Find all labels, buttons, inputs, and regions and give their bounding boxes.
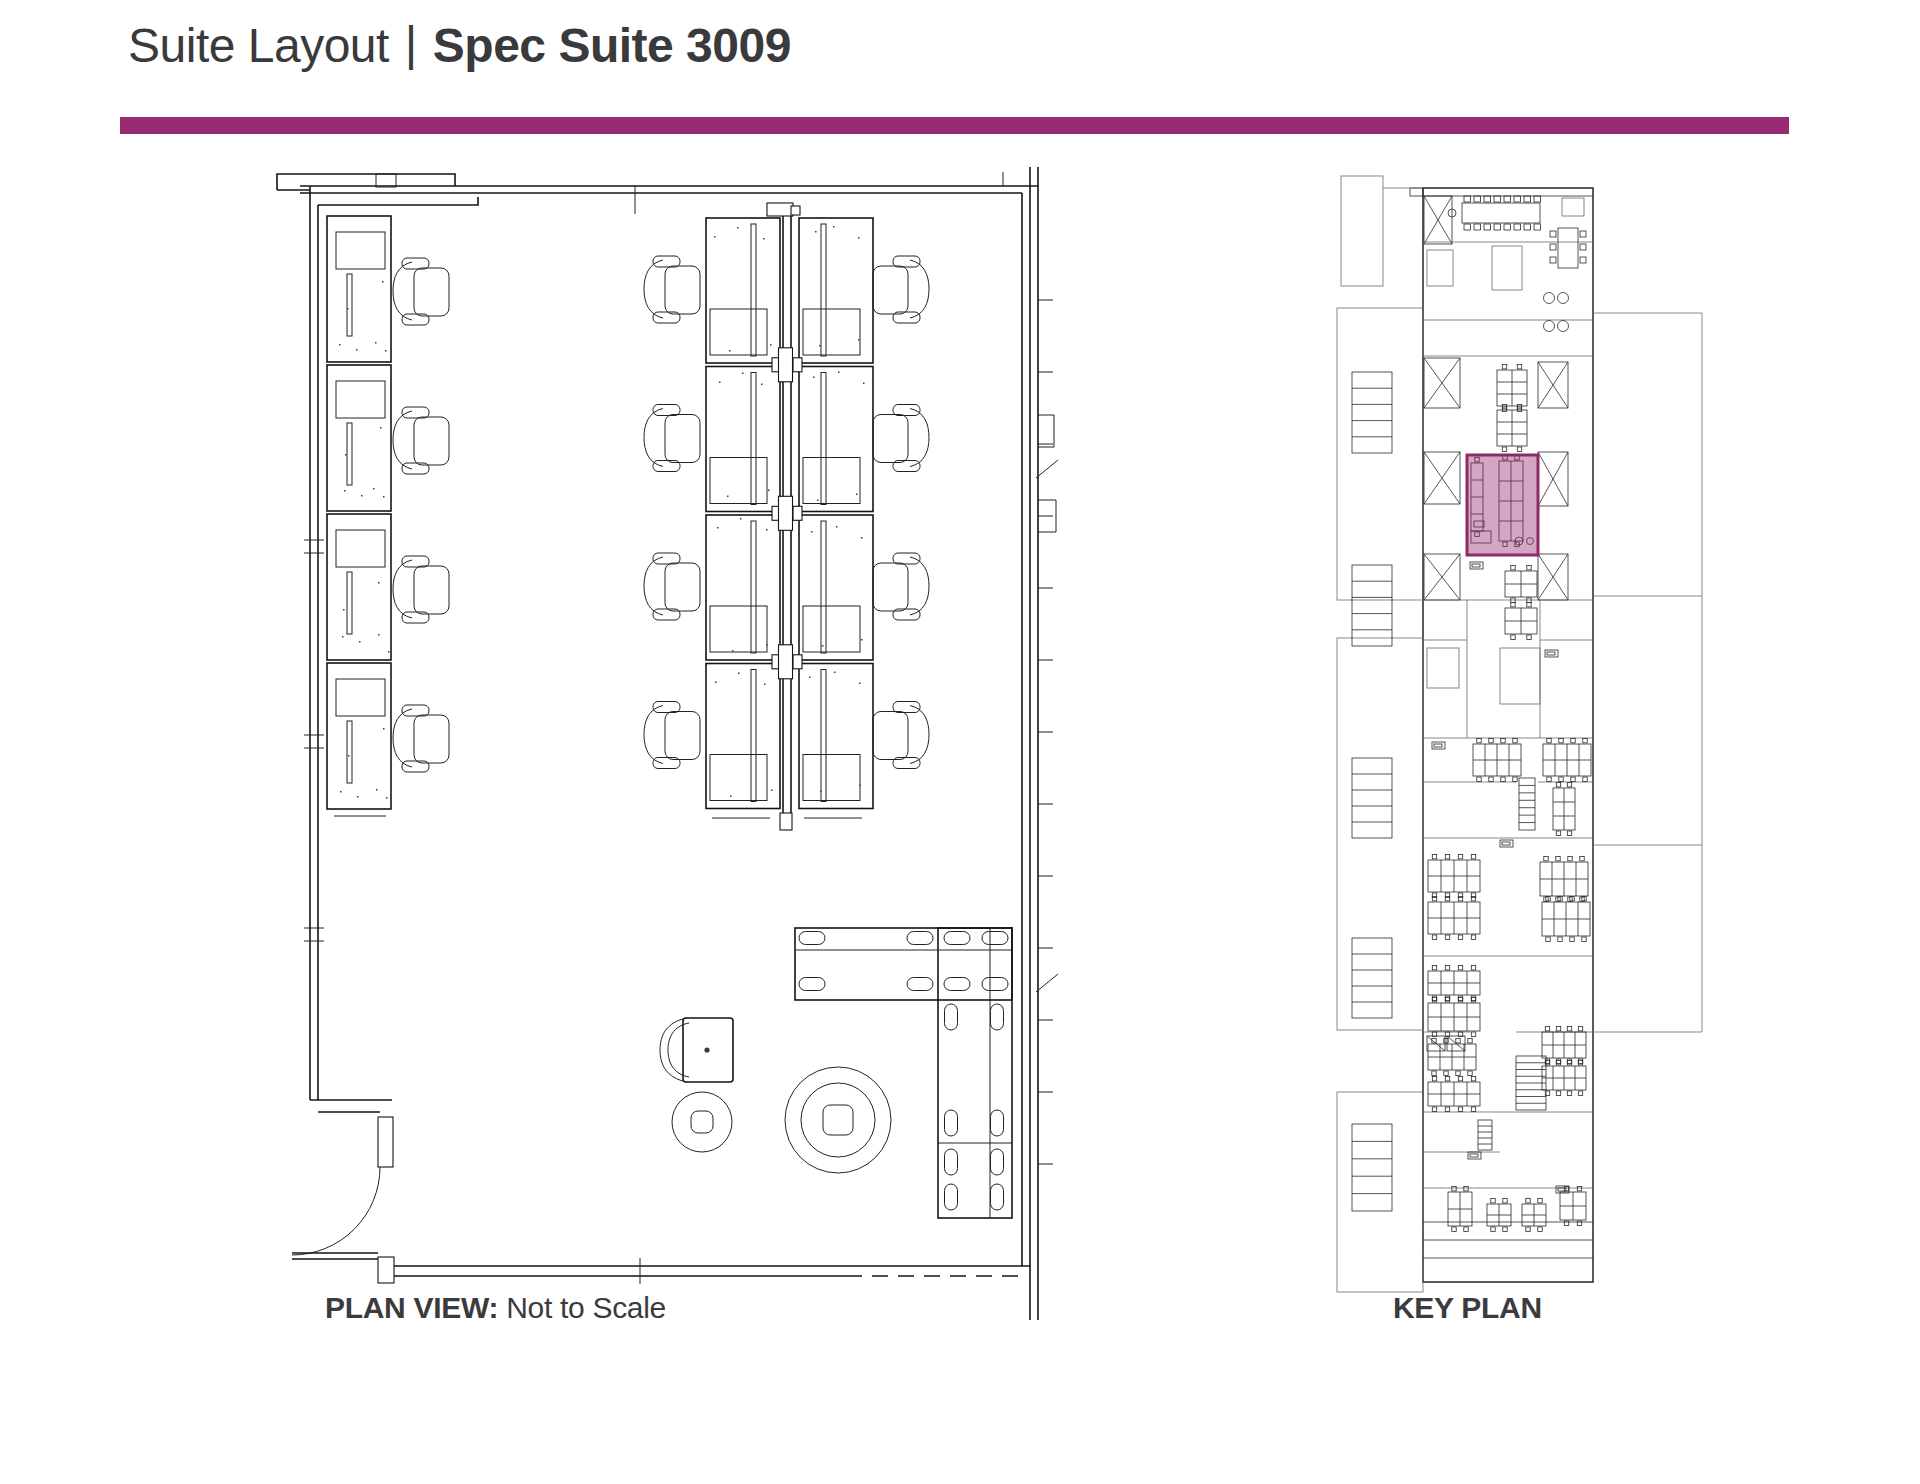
door-swing-arc [292, 1167, 380, 1255]
key-plan-caption: KEY PLAN [1393, 1291, 1542, 1325]
louver-panel [1352, 1124, 1392, 1211]
task-chair [873, 702, 929, 769]
core-shaft [1424, 196, 1452, 244]
high-table-group [795, 928, 1012, 1218]
bench-desk [799, 515, 873, 660]
plan-view-caption-bold: PLAN VIEW: [325, 1291, 498, 1324]
desk-cluster [1428, 855, 1480, 898]
desk-cluster [1497, 405, 1527, 452]
core-shaft [1538, 554, 1568, 600]
task-chair [393, 407, 449, 474]
desk-cluster [1428, 1077, 1480, 1112]
task-chair [393, 258, 449, 325]
plan-view-caption-text: Not to Scale [498, 1291, 666, 1324]
bench-desk [706, 664, 780, 809]
desk-cluster [1542, 1027, 1586, 1064]
workstation-desk [327, 365, 391, 511]
bench-desk [799, 664, 873, 809]
desk-cluster [1497, 365, 1527, 412]
task-chair [873, 553, 929, 620]
bench-desk [706, 515, 780, 660]
core-shaft [1538, 452, 1568, 506]
core-shaft [1424, 358, 1460, 408]
desk-cluster [1553, 783, 1575, 836]
task-chair [873, 256, 929, 323]
desk-cluster [1473, 739, 1521, 782]
desk-cluster [1560, 1187, 1586, 1226]
desk-cluster [1428, 897, 1480, 940]
stair [1516, 1056, 1546, 1110]
louver-panel [1352, 565, 1392, 646]
desk-cluster [1542, 1061, 1586, 1096]
core-shaft [1538, 362, 1568, 408]
desk-cluster [1428, 998, 1480, 1037]
bench-desk [799, 367, 873, 512]
key-plan [1337, 176, 1702, 1292]
workstation-desk [327, 663, 391, 809]
task-chair [644, 256, 700, 323]
bench-desk [706, 218, 780, 363]
task-chair [644, 553, 700, 620]
lounge-chair [660, 1018, 733, 1082]
plan-view-furniture [327, 203, 1012, 1218]
core-shaft [1424, 554, 1460, 600]
louver-panel [1352, 758, 1392, 838]
round-table [672, 1092, 732, 1152]
desk-cluster [1540, 857, 1588, 902]
louver-panel [1352, 372, 1392, 453]
desk-cluster [1428, 1039, 1476, 1076]
desk-cluster [1487, 1199, 1511, 1232]
task-chair [644, 702, 700, 769]
desk-cluster [1428, 966, 1480, 1001]
workstation-desk [327, 216, 391, 362]
floor-plan-drawing [0, 0, 1920, 1484]
conference-table [1448, 196, 1541, 230]
plan-view-walls [277, 167, 1058, 1320]
louver-panel [1352, 938, 1392, 1018]
slide-page: Suite Layout|Spec Suite 3009 PLAN V [0, 0, 1920, 1484]
suite-3009-highlight [1467, 455, 1538, 555]
task-chair [393, 556, 449, 623]
desk-cluster [1522, 1199, 1546, 1232]
desk-cluster [1543, 739, 1591, 782]
task-chair [393, 705, 449, 772]
desk-cluster [1505, 603, 1537, 640]
plan-view-caption: PLAN VIEW: Not to Scale [325, 1291, 666, 1325]
task-chair [873, 405, 929, 472]
task-chair [644, 405, 700, 472]
bench-desk [799, 218, 873, 363]
desk-cluster [1505, 566, 1537, 603]
workstation-desk [327, 514, 391, 660]
stair [1519, 778, 1535, 830]
core-shaft [1424, 452, 1460, 504]
desk-cluster [1448, 1187, 1472, 1232]
stair [1478, 1120, 1492, 1150]
desk-cluster [1542, 897, 1590, 942]
round-table [785, 1067, 891, 1173]
